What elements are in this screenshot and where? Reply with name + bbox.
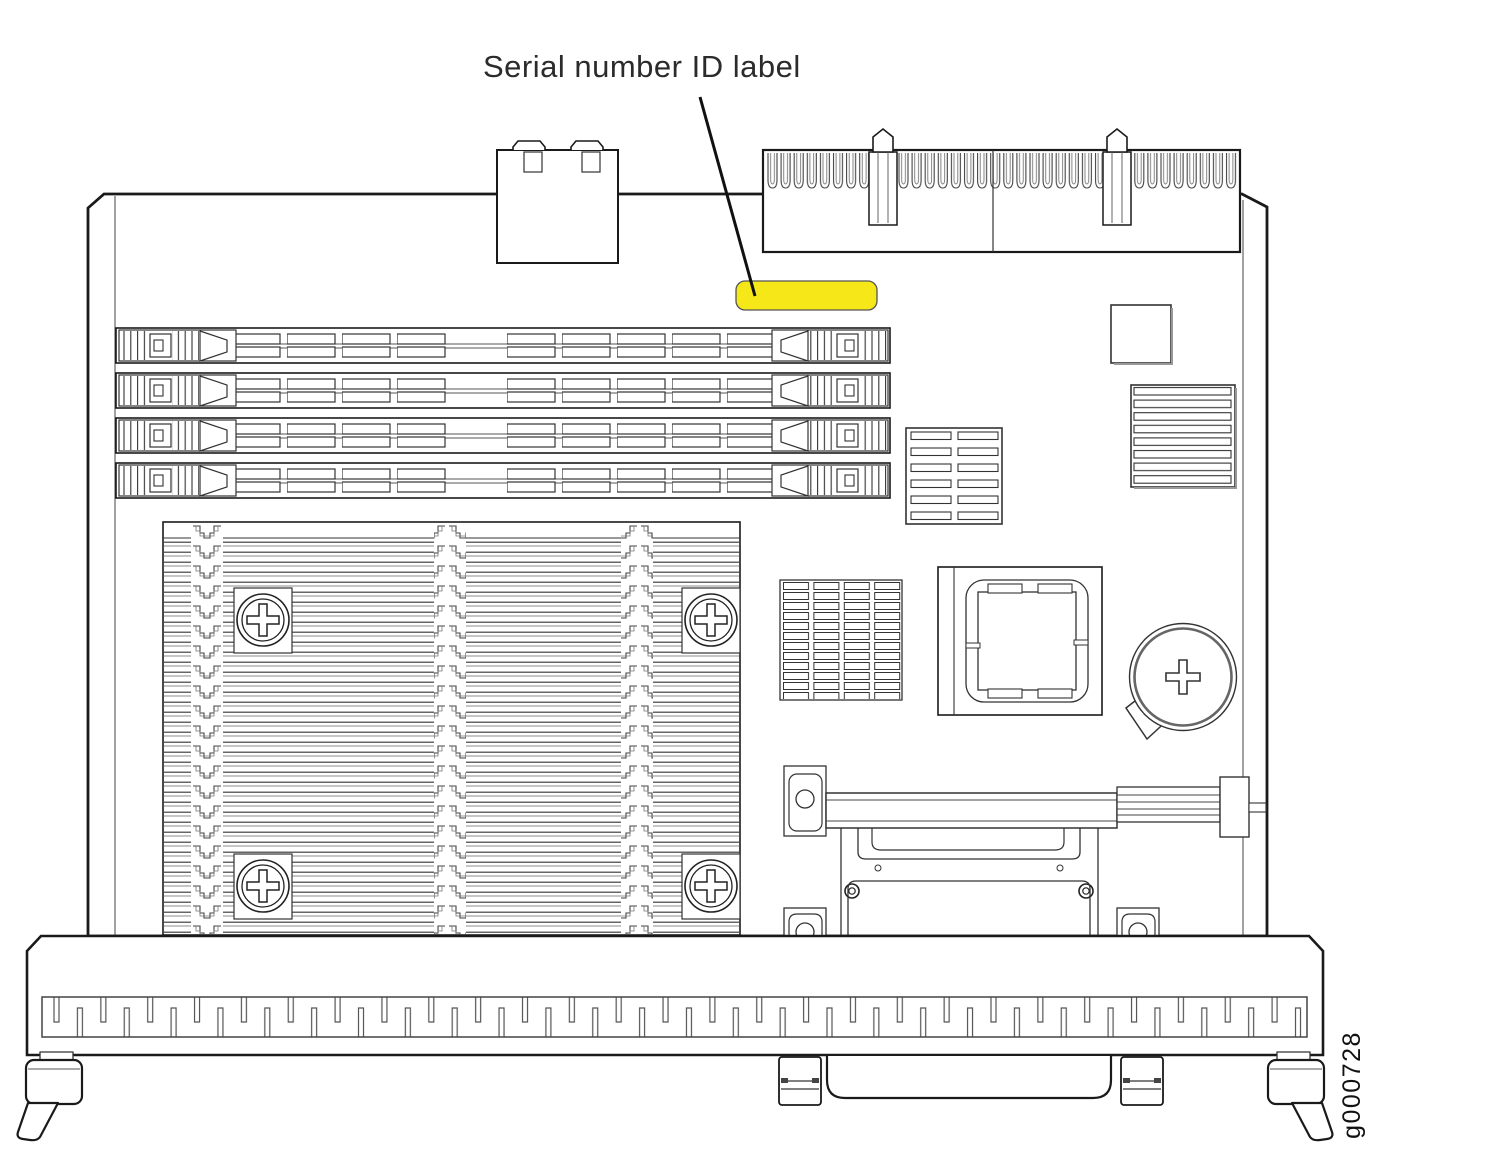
ribbon-cable	[1117, 787, 1220, 822]
figure-id: g000728	[1338, 1031, 1366, 1139]
dimm-slot	[116, 328, 890, 363]
phillips-screw-icon	[682, 588, 740, 653]
top-left-connector	[497, 141, 618, 263]
emi-gasket-strip	[42, 997, 1307, 1037]
jackscrew-right	[1121, 1057, 1163, 1105]
cpu-socket	[938, 567, 1102, 715]
dimm-slot	[116, 418, 890, 453]
small-heatsink	[906, 428, 1002, 524]
heatsink-zipper-column	[191, 524, 223, 934]
dimm-slot	[116, 463, 890, 498]
ejector-lever-right	[1268, 1052, 1332, 1140]
bottom-connector	[779, 1056, 1163, 1105]
phillips-screw-icon	[234, 588, 292, 653]
dimm-slot	[116, 373, 890, 408]
grid-heatsink	[780, 580, 902, 700]
cable-connector	[1220, 777, 1249, 837]
ejector-lever-left	[18, 1052, 82, 1140]
connector-key-icon	[1103, 129, 1131, 225]
phillips-screw-icon	[234, 854, 292, 919]
board-diagram-svg: Serial number ID label g000728	[0, 0, 1501, 1166]
routing-engine-diagram: Serial number ID label g000728	[0, 0, 1501, 1166]
connector-teeth	[766, 153, 1237, 195]
midplane-connector	[763, 129, 1240, 252]
connector-tab-icon	[571, 141, 603, 150]
chip	[1111, 305, 1171, 363]
phillips-screw-icon	[682, 854, 740, 919]
front-panel	[27, 936, 1323, 1055]
slat-heatsink	[1131, 385, 1236, 488]
connector-tab-icon	[513, 141, 545, 150]
connector-key-icon	[869, 129, 897, 225]
heatsink-zipper-column	[434, 524, 466, 934]
drive-rail	[826, 793, 1117, 828]
cpu-heatsink	[163, 522, 740, 935]
jackscrew-left	[779, 1057, 821, 1105]
serial-number-label-highlight	[736, 281, 877, 310]
figure-title: Serial number ID label	[483, 49, 801, 84]
heatsink-zipper-column	[621, 524, 653, 934]
bracket-hole	[796, 790, 814, 808]
